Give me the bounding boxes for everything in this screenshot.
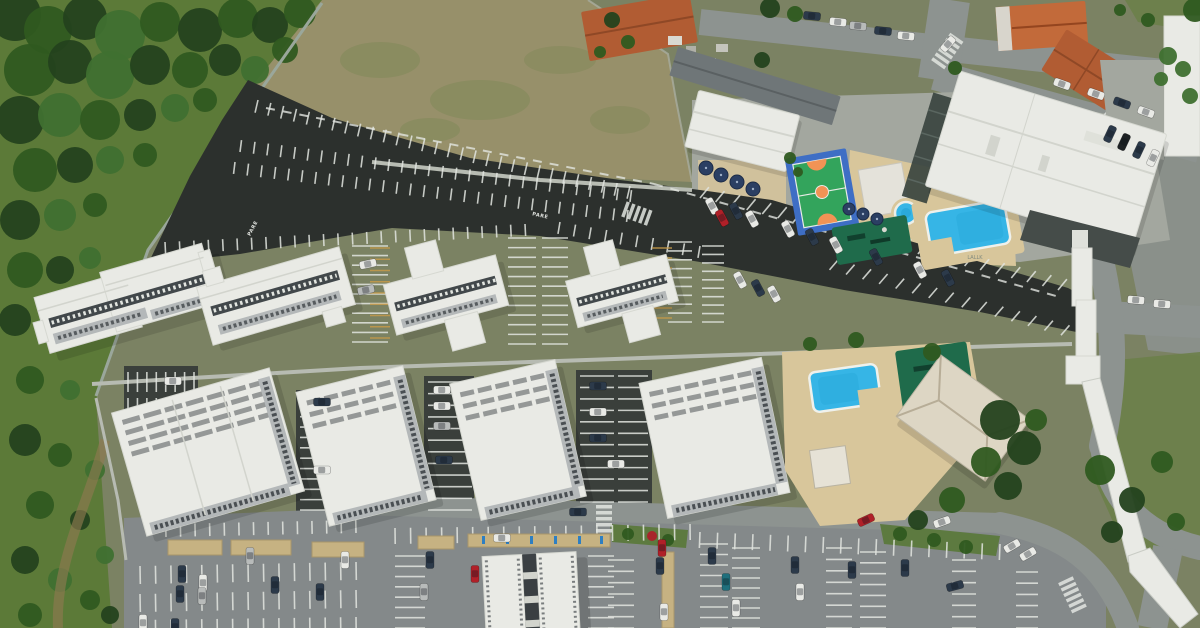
deck-marking-text: LALLK	[967, 255, 983, 261]
umbrella-tip	[705, 167, 707, 169]
parking-stripe	[823, 537, 824, 553]
car-roof-glass	[902, 33, 910, 40]
car	[246, 548, 254, 565]
car-roof-glass	[169, 378, 176, 384]
forest-tree	[16, 366, 44, 394]
car-roof-glass	[834, 19, 842, 26]
field-grass-patch	[340, 42, 420, 78]
car-roof-glass	[318, 467, 325, 473]
parking-stripe	[295, 236, 296, 248]
zebra-stripe	[596, 529, 612, 533]
pool2-service-pad	[810, 446, 851, 489]
zebra-stripe	[596, 523, 612, 527]
tree	[793, 167, 803, 177]
tree	[754, 52, 770, 68]
tree	[787, 6, 803, 22]
car	[271, 577, 279, 594]
field-grass-patch	[400, 118, 460, 142]
tree	[1085, 455, 1115, 485]
car	[1127, 295, 1145, 304]
forest-tree	[124, 99, 156, 131]
forest-tree	[57, 147, 93, 183]
forest-tree	[80, 100, 120, 140]
umbrella-tip	[752, 188, 754, 190]
parking-stripe	[752, 534, 753, 550]
tree	[1159, 47, 1177, 65]
car-roof-glass	[723, 578, 729, 585]
tree	[927, 533, 941, 547]
forest-tree	[44, 199, 76, 231]
forest-tree	[0, 200, 40, 240]
car	[660, 604, 668, 621]
car	[436, 456, 453, 464]
parking-stripe	[717, 533, 718, 549]
car	[791, 557, 799, 574]
forest-tree	[161, 94, 189, 122]
tree	[784, 152, 796, 164]
car	[139, 615, 147, 628]
car	[590, 434, 607, 442]
tree	[848, 332, 864, 348]
car-roof-glass	[594, 409, 601, 415]
high-rise-tower	[482, 551, 593, 628]
car-roof-glass	[709, 552, 715, 559]
car	[471, 566, 479, 583]
forest-tree	[133, 143, 157, 167]
tree	[1154, 72, 1168, 86]
car-roof-glass	[179, 570, 185, 577]
parking-stripe	[237, 238, 238, 250]
forest-tree	[38, 93, 82, 137]
car	[829, 17, 847, 27]
forest-tree	[60, 380, 80, 400]
parking-stripe	[982, 543, 983, 559]
parking-stripe	[788, 536, 789, 552]
parking-stripe	[381, 231, 382, 243]
car	[420, 584, 428, 601]
parking-stripe	[858, 538, 859, 554]
umbrella-tip	[848, 208, 850, 210]
tree	[1119, 487, 1145, 513]
forest-tree	[172, 52, 208, 88]
car	[178, 566, 186, 583]
forest-tree	[48, 443, 72, 467]
car-roof-glass	[1158, 301, 1166, 308]
car-roof-glass	[199, 592, 205, 599]
parking-stripe	[876, 539, 877, 555]
umbrella-tip	[876, 218, 878, 220]
car-roof-glass	[792, 561, 798, 568]
car	[434, 402, 451, 410]
forest-tree	[18, 603, 42, 627]
tree	[594, 46, 606, 58]
car-roof-glass	[594, 383, 601, 389]
car-roof-glass	[472, 570, 478, 577]
forest-tree	[101, 606, 119, 624]
parking-stripe	[999, 544, 1000, 560]
car-roof-glass	[172, 623, 178, 628]
parking-stripe	[251, 238, 252, 250]
tree	[1151, 451, 1173, 473]
car-roof-glass	[421, 588, 427, 595]
construction-debris	[668, 36, 682, 45]
tree	[1182, 88, 1198, 104]
car	[1153, 299, 1171, 308]
parking-stripe	[946, 542, 947, 558]
car-roof-glass	[612, 461, 619, 467]
tree	[1101, 521, 1123, 543]
tree	[939, 487, 965, 513]
field-grass-patch	[430, 80, 530, 120]
parking-stripe	[223, 239, 224, 251]
white-commercial-building	[1164, 16, 1200, 156]
car	[708, 548, 716, 565]
car-roof-glass	[733, 604, 739, 611]
car	[656, 558, 664, 575]
tree	[971, 447, 1001, 477]
car-roof-glass	[498, 535, 505, 541]
car	[848, 562, 856, 579]
car	[314, 398, 331, 406]
car-roof-glass	[879, 28, 887, 35]
car	[314, 466, 331, 474]
car-roof-glass	[659, 544, 665, 551]
parking-stripe	[525, 224, 526, 236]
car	[434, 386, 451, 394]
car-roof-glass	[797, 588, 803, 595]
parking-stripe	[323, 234, 324, 246]
forest-tree	[0, 304, 31, 336]
tree	[1025, 409, 1047, 431]
forest-tree	[178, 8, 222, 52]
tree	[803, 337, 817, 351]
parking-stripe	[699, 532, 700, 548]
tree	[622, 528, 634, 540]
parking-stripe	[309, 235, 310, 247]
forest-tree	[9, 424, 41, 456]
car-roof-glass	[200, 579, 206, 586]
car-roof-glass	[438, 387, 445, 393]
field-grass-patch	[590, 106, 650, 134]
car-roof-glass	[247, 552, 253, 559]
aerial-photo-stage: PAREPARELALLK	[0, 0, 1200, 628]
field-grass-patch	[524, 46, 596, 74]
car-roof-glass	[808, 13, 816, 20]
car-roof-glass	[657, 562, 663, 569]
parking-stripe	[395, 230, 396, 242]
forest-tree	[7, 252, 43, 288]
tree	[908, 510, 928, 530]
tree	[980, 400, 1020, 440]
umbrella-tip	[736, 181, 738, 183]
car	[849, 21, 867, 31]
parking-stripe	[266, 237, 267, 249]
parking-stripe	[165, 242, 166, 254]
car-roof-glass	[574, 509, 581, 515]
forest-tree	[86, 51, 134, 99]
parking-stripe	[439, 228, 440, 240]
forest-tree	[48, 40, 92, 84]
car	[426, 552, 434, 569]
car-roof-glass	[317, 588, 323, 595]
forest-tree	[13, 148, 57, 192]
car	[732, 600, 740, 617]
forest-tree	[96, 546, 114, 564]
forest-tree	[4, 44, 56, 96]
tree	[923, 343, 941, 361]
parking-stripe	[482, 226, 483, 238]
car-roof-glass	[854, 23, 862, 30]
tree	[1141, 13, 1155, 27]
car-roof-glass	[342, 556, 348, 563]
car	[590, 408, 607, 416]
parking-stripe	[805, 536, 806, 552]
forest-tree	[79, 247, 101, 269]
umbrella-tip	[720, 174, 722, 176]
car-roof-glass	[438, 403, 445, 409]
parking-stripe	[911, 540, 912, 556]
parking-stripe	[410, 230, 411, 242]
car	[897, 31, 915, 41]
car	[198, 588, 206, 605]
car	[608, 460, 625, 468]
car-roof-glass	[661, 608, 667, 615]
forest-tree	[96, 146, 124, 174]
car	[494, 534, 511, 542]
forest-tree	[83, 193, 107, 217]
aerial-photo: PAREPARELALLK	[0, 0, 1200, 628]
parking-stripe	[338, 233, 339, 245]
car-roof-glass	[140, 619, 146, 626]
car	[434, 422, 451, 430]
forest-tree	[130, 45, 170, 85]
parking-stripe	[367, 232, 368, 244]
car	[176, 586, 184, 603]
red-flower-bush	[647, 531, 657, 541]
car	[874, 26, 892, 36]
car	[165, 377, 182, 385]
car-roof-glass	[272, 581, 278, 588]
parking-stripe	[467, 227, 468, 239]
car-roof-glass	[427, 556, 433, 563]
parking-stripe	[841, 538, 842, 554]
zebra-stripe	[596, 511, 612, 515]
tree	[1175, 61, 1191, 77]
tree	[1007, 431, 1041, 465]
tree	[604, 12, 620, 28]
tree	[893, 527, 907, 541]
car	[570, 508, 587, 516]
forest-tree	[241, 56, 269, 84]
car-roof-glass	[177, 590, 183, 597]
forest-tree	[140, 2, 180, 42]
car	[341, 552, 349, 569]
zebra-stripe	[596, 505, 612, 509]
forest-tree	[11, 546, 39, 574]
car	[171, 619, 179, 628]
forest-tree	[46, 256, 74, 284]
tree	[1114, 4, 1126, 16]
car	[803, 11, 821, 21]
parking-stripe	[893, 540, 894, 556]
parking-stripe	[424, 229, 425, 241]
forest-tree	[26, 491, 54, 519]
parking-stripe	[280, 236, 281, 248]
car-roof-glass	[318, 399, 325, 405]
umbrella-tip	[862, 213, 864, 215]
parking-stripe	[453, 228, 454, 240]
tree	[621, 35, 635, 49]
car	[796, 584, 804, 601]
car	[658, 540, 666, 557]
tree	[1167, 513, 1185, 531]
parking-stripe	[735, 533, 736, 549]
pool2-step-notch	[857, 387, 883, 408]
construction-debris	[716, 44, 728, 52]
tree	[994, 472, 1022, 500]
car-roof-glass	[849, 566, 855, 573]
zebra-stripe	[596, 517, 612, 521]
car	[316, 584, 324, 601]
car-roof-glass	[902, 564, 908, 571]
tree	[948, 61, 962, 75]
car-roof-glass	[594, 435, 601, 441]
car	[722, 574, 730, 591]
car-roof-glass	[1132, 297, 1140, 304]
parking-stripe	[352, 233, 353, 245]
forest-tree	[80, 590, 100, 610]
parking-stripe	[496, 225, 497, 237]
forest-tree	[193, 88, 217, 112]
forest-tree	[209, 44, 241, 76]
tree	[959, 540, 973, 554]
parking-stripe	[770, 535, 771, 551]
car-roof-glass	[438, 423, 445, 429]
parking-stripe	[511, 225, 512, 237]
car	[901, 560, 909, 577]
car	[590, 382, 607, 390]
car-roof-glass	[440, 457, 447, 463]
